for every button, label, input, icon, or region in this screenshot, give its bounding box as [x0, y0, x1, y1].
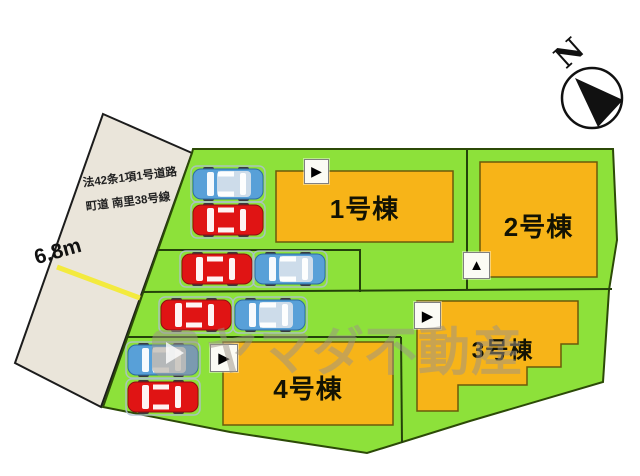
- compass-rose: [562, 68, 623, 128]
- car-red: [159, 297, 233, 333]
- car-blue: [253, 251, 327, 287]
- building-1-label: 1号棟: [276, 189, 453, 226]
- car-blue: [233, 297, 307, 333]
- car-red: [191, 202, 265, 238]
- site-plan: 法42条1項1号道路 町道 南里38号線 6.8m N 1号棟 2号棟 3号棟 …: [0, 0, 640, 476]
- building-2-label: 2号棟: [480, 207, 597, 244]
- car-blue: [126, 342, 200, 378]
- building-2-entrance-marker-icon: ▲: [463, 252, 490, 279]
- car-red: [126, 379, 200, 415]
- building-4-label: 4号棟: [223, 369, 393, 406]
- building-4-entrance-marker-icon: ▶: [210, 344, 238, 372]
- building-1-entrance-marker-icon: ▶: [304, 159, 329, 184]
- building-3-entrance-marker-icon: ▶: [414, 302, 441, 329]
- building-3-label: 3号棟: [425, 331, 580, 365]
- car-red: [180, 251, 254, 287]
